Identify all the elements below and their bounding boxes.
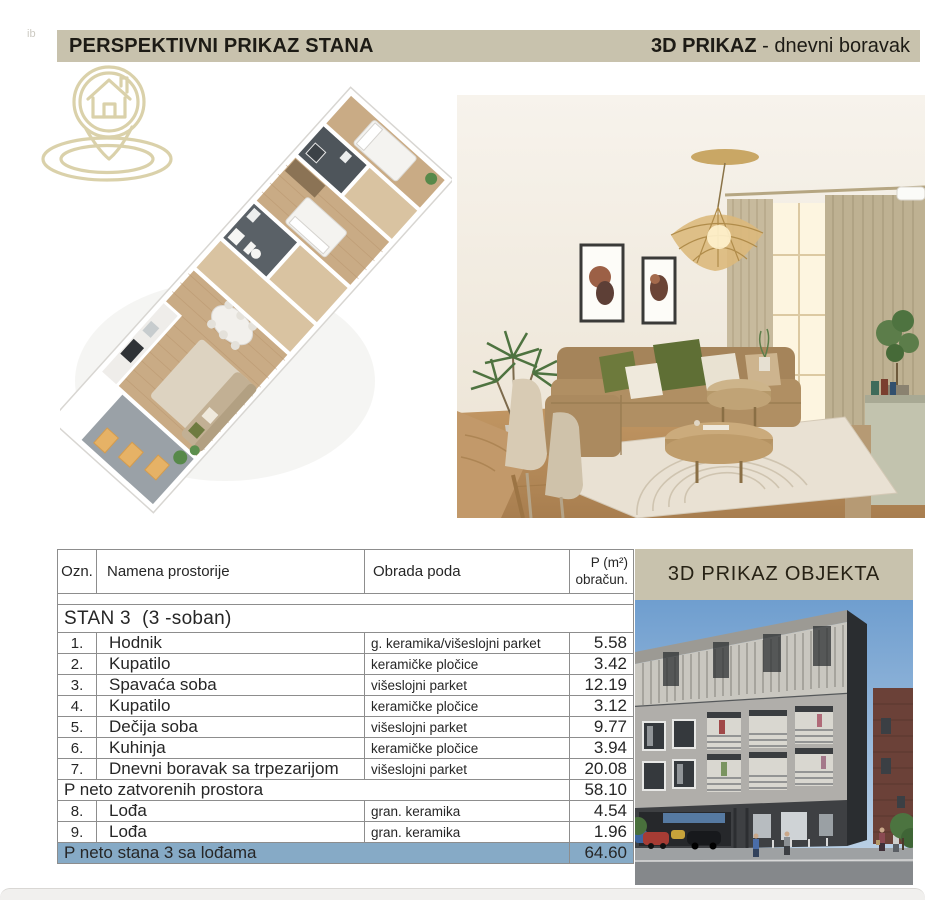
subtotal-area: 58.10 xyxy=(570,780,634,801)
object-panel-title-band: 3D PRIKAZ OBJEKTA xyxy=(635,549,913,600)
table-row: 9. Lođa gran. keramika 1.96 xyxy=(58,822,634,843)
table-row: 4. Kupatilo keramičke pločice 3.12 xyxy=(58,696,634,717)
cell-floor: gran. keramika xyxy=(365,822,570,843)
group-title: STAN 3 (3 -soban) xyxy=(58,605,634,633)
cell-ozn: 6. xyxy=(58,738,97,759)
corner-mark: ib xyxy=(27,28,36,40)
page-subtitle: 3D PRIKAZ - dnevni boravak xyxy=(651,35,910,58)
brand-logo xyxy=(28,58,193,193)
subtitle-rest: - dnevni boravak xyxy=(757,35,910,57)
cell-ozn: 2. xyxy=(58,654,97,675)
cell-floor: višeslojni parket xyxy=(365,759,570,780)
subtotal-row: P neto zatvorenih prostora 58.10 xyxy=(58,780,634,801)
cell-ozn: 5. xyxy=(58,717,97,738)
cell-floor: keramičke pločice xyxy=(365,738,570,759)
building-panel xyxy=(635,600,913,885)
table-row: 8. Lođa gran. keramika 4.54 xyxy=(58,801,634,822)
cell-floor: višeslojni parket xyxy=(365,717,570,738)
subtotal-label: P neto zatvorenih prostora xyxy=(58,780,570,801)
cell-name: Lođa xyxy=(97,801,365,822)
cell-name: Kupatilo xyxy=(97,696,365,717)
cell-ozn: 9. xyxy=(58,822,97,843)
cell-floor: keramičke pločice xyxy=(365,654,570,675)
table-row: 7. Dnevni boravak sa trpezarijom višeslo… xyxy=(58,759,634,780)
cell-area: 1.96 xyxy=(570,822,634,843)
total-area: 64.60 xyxy=(570,843,634,864)
cell-area: 5.58 xyxy=(570,633,634,654)
building-side xyxy=(847,610,867,846)
pin-house-icon xyxy=(28,58,193,193)
table-row: 3. Spavaća soba višeslojni parket 12.19 xyxy=(58,675,634,696)
cell-floor: gran. keramika xyxy=(365,801,570,822)
col-header-name: Namena prostorije xyxy=(97,550,365,594)
group-title-row: STAN 3 (3 -soban) xyxy=(58,605,634,633)
cell-name: Dnevni boravak sa trpezarijom xyxy=(97,759,365,780)
area-table: Ozn. Namena prostorije Obrada poda P (m²… xyxy=(57,549,634,864)
building-photo xyxy=(635,600,913,885)
cell-area: 9.77 xyxy=(570,717,634,738)
table-header-row: Ozn. Namena prostorije Obrada poda P (m²… xyxy=(58,550,634,594)
table-row: 1. Hodnik g. keramika/višeslojni parket … xyxy=(58,633,634,654)
col-header-area-line2: obračun. xyxy=(570,572,628,588)
col-header-area-line1: P (m²) xyxy=(570,555,628,571)
cell-name: Kupatilo xyxy=(97,654,365,675)
cell-name: Kuhinja xyxy=(97,738,365,759)
total-row: P neto stana 3 sa lođama 64.60 xyxy=(58,843,634,864)
cell-name: Spavaća soba xyxy=(97,675,365,696)
col-header-area: P (m²) obračun. xyxy=(570,550,634,594)
cell-name: Dečija soba xyxy=(97,717,365,738)
cell-area: 3.42 xyxy=(570,654,634,675)
cell-area: 12.19 xyxy=(570,675,634,696)
cell-ozn: 1. xyxy=(58,633,97,654)
spacer-row xyxy=(58,594,634,605)
cell-floor: višeslojni parket xyxy=(365,675,570,696)
cell-floor: keramičke pločice xyxy=(365,696,570,717)
cell-ozn: 8. xyxy=(58,801,97,822)
living-room-photo xyxy=(457,95,925,518)
cell-area: 3.12 xyxy=(570,696,634,717)
cell-name: Hodnik xyxy=(97,633,365,654)
page-title: PERSPEKTIVNI PRIKAZ STANA xyxy=(69,35,374,58)
living-room-panel xyxy=(457,95,925,518)
cell-ozn: 3. xyxy=(58,675,97,696)
cell-name: Lođa xyxy=(97,822,365,843)
page-bottom-bar xyxy=(0,888,925,900)
table-row: 6. Kuhinja keramičke pločice 3.94 xyxy=(58,738,634,759)
col-header-floor: Obrada poda xyxy=(365,550,570,594)
cell-area: 4.54 xyxy=(570,801,634,822)
total-label: P neto stana 3 sa lođama xyxy=(58,843,570,864)
subtitle-bold: 3D PRIKAZ xyxy=(651,35,757,57)
cell-floor: g. keramika/višeslojni parket xyxy=(365,633,570,654)
cell-ozn: 7. xyxy=(58,759,97,780)
col-header-ozn: Ozn. xyxy=(58,550,97,594)
table-row: 2. Kupatilo keramičke pločice 3.42 xyxy=(58,654,634,675)
table-row: 5. Dečija soba višeslojni parket 9.77 xyxy=(58,717,634,738)
cell-ozn: 4. xyxy=(58,696,97,717)
object-panel-title: 3D PRIKAZ OBJEKTA xyxy=(668,563,880,586)
cell-area: 20.08 xyxy=(570,759,634,780)
cell-area: 3.94 xyxy=(570,738,634,759)
ac-unit xyxy=(897,187,925,200)
